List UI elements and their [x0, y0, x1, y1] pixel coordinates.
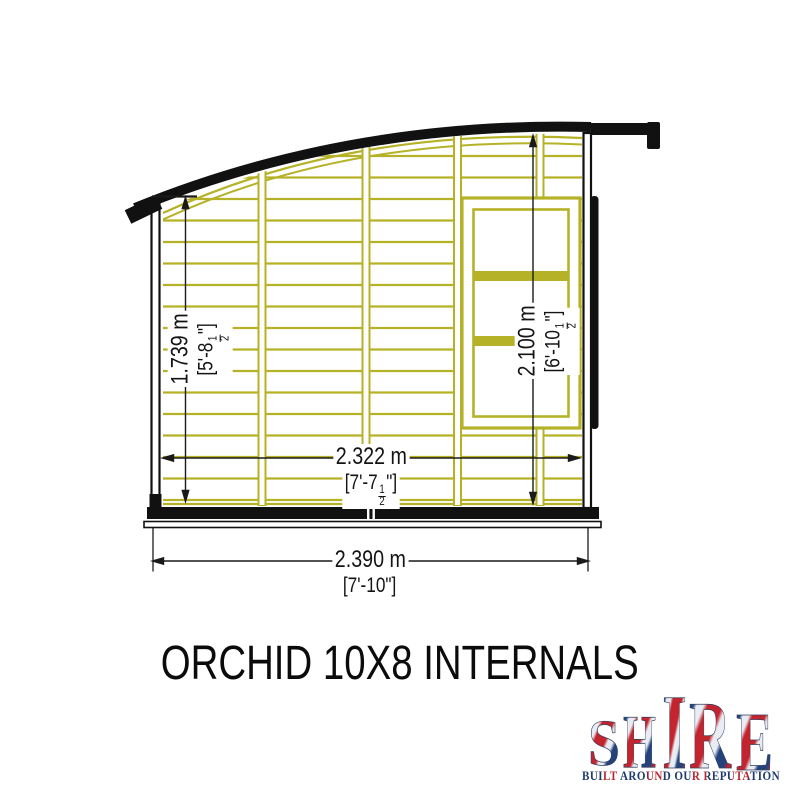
left-wall	[150, 203, 162, 508]
dimension-metric-value: 1.739 m	[168, 311, 195, 387]
dimension-height-right: 2.100 m [6'-1012"]	[515, 266, 580, 416]
dimension-metric-value: 2.100 m	[515, 303, 542, 379]
dimension-overall-width: 2.390 m [7'-10"]	[290, 547, 450, 597]
dimension-imperial-value: [6'-1012"]	[542, 308, 580, 375]
dimension-imperial-value: [5'-812"]	[195, 321, 233, 378]
dimension-metric-value: 2.322 m	[333, 444, 409, 471]
shire-logo: S H I R E BUILT AROUND OUR REPUTATION	[582, 674, 780, 792]
floor	[144, 507, 601, 528]
roof-overhang	[591, 123, 654, 135]
shed-diagram-page: S H I R E BUILT AROUND OUR REPUTATION 1.…	[0, 0, 800, 800]
dimension-metric-value: 2.390 m	[332, 547, 408, 574]
dimension-imperial-value: [7'-712"]	[342, 471, 399, 509]
dimension-height-left: 1.739 m [5'-812"]	[168, 274, 233, 424]
logo-tagline: BUILT AROUND OUR REPUTATION	[582, 769, 780, 783]
dimension-imperial-value: [7'-10"]	[341, 574, 399, 598]
right-wall	[584, 133, 599, 508]
dimension-internal-width: 2.322 m [7'-712"]	[291, 444, 451, 509]
diagram-title-text: ORCHID 10X8 INTERNALS	[159, 636, 642, 691]
roof-fascia-end	[647, 122, 660, 149]
diagram-title: ORCHID 10X8 INTERNALS	[0, 636, 800, 691]
